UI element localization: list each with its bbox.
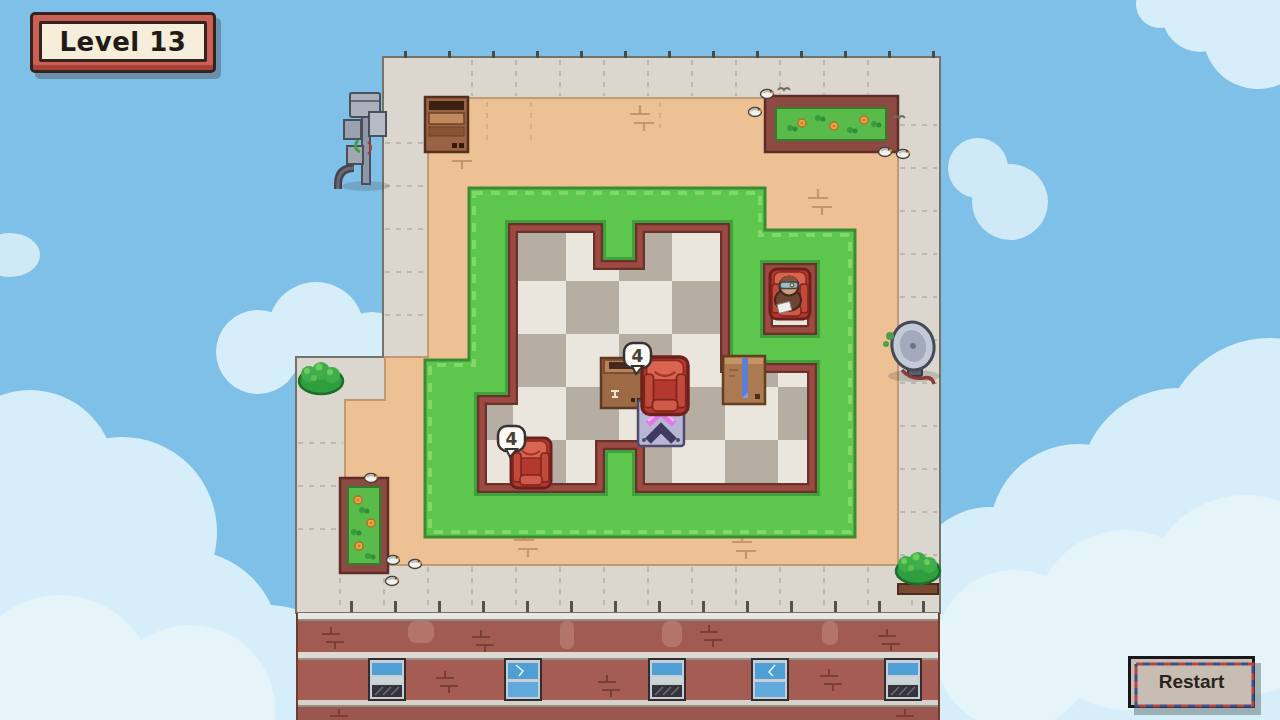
apartment-facade bbox=[296, 601, 940, 720]
window-vent bbox=[369, 659, 405, 700]
game-screen: 4 4 bbox=[0, 0, 1280, 720]
window-vent bbox=[885, 659, 921, 700]
restart-button-label: Restart bbox=[1131, 659, 1252, 705]
window-vent bbox=[649, 659, 685, 700]
restart-button[interactable]: Restart bbox=[1128, 656, 1255, 708]
svg-text:4: 4 bbox=[632, 346, 644, 366]
window-glass bbox=[752, 659, 788, 700]
taped-crate bbox=[723, 356, 765, 404]
game-canvas: 4 4 bbox=[0, 0, 1280, 720]
wooden-cabinet bbox=[425, 97, 468, 152]
level-badge-label: Level 13 bbox=[39, 21, 207, 62]
flower-planter-left bbox=[340, 478, 388, 573]
window-glass bbox=[505, 659, 541, 700]
svg-text:4: 4 bbox=[506, 429, 518, 449]
level-badge: Level 13 bbox=[30, 12, 216, 73]
flower-planter-top bbox=[765, 96, 898, 152]
